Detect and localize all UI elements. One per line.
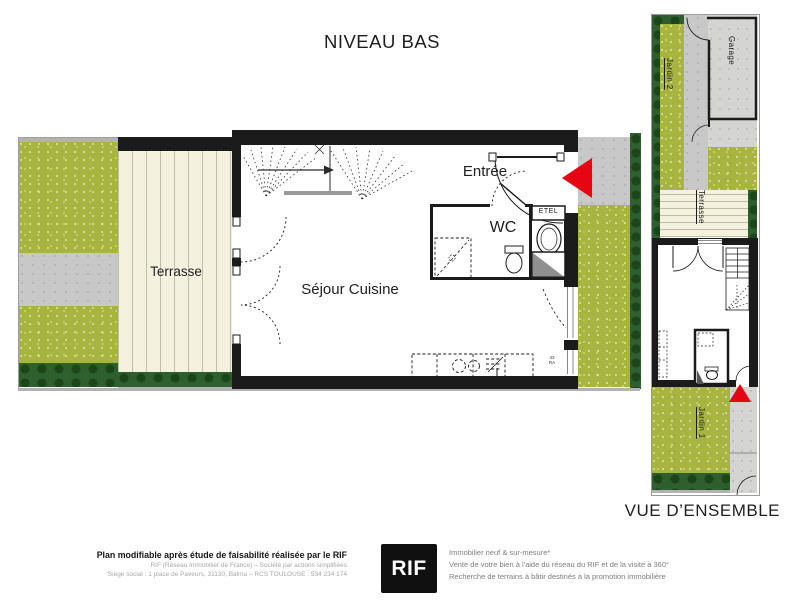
living-kitchen-label: Séjour Cuisine [290,281,410,298]
footer-disclaimer: Plan modifiable après étude de faisabili… [58,550,347,560]
page-title: NIVEAU BAS [282,31,482,53]
garden-grass-lower [19,306,119,363]
left-garden-strip [18,137,122,390]
terrace-decking [118,151,232,372]
window-opening-upper [564,287,578,338]
floor-plan-page: NIVEAU BAS Terrasse Séjour Cuisine Entré… [0,0,800,600]
right-garden-grass [578,205,630,387]
house-wall-bottom [232,376,578,389]
entry-label: Entrée [435,163,535,180]
rif-logo: RIF [381,544,437,593]
kitchen-note: 43 RA [546,355,558,365]
terrace-hedge [118,372,232,387]
footer-legal-1: RIF (Réseau Immobilier de France) – Soci… [58,562,347,571]
footer-legal-2: Siège social : 1 place de Paveurs, 31130… [58,571,347,580]
house-wall-left-2 [232,258,241,266]
right-hedge-strip [630,133,641,389]
house-wall-top [232,130,578,145]
wc-wall-left [430,204,433,280]
footer-service-1: Immobilier neuf & sur-mesure* [449,547,739,559]
window-opening-lower [564,350,578,376]
wc-wall-divider [529,207,532,277]
ov-garage-label: Garage [727,36,736,102]
house-wall-right-2 [564,213,578,287]
house-wall-right-3 [564,340,578,350]
garden-pathway [19,253,119,306]
entry-pathway [578,137,630,205]
garden-hedge [19,363,119,387]
wc-label: WC [478,219,528,237]
house-wall-right-1 [564,130,578,152]
footer-service-3: Recherche de terrains à bâtir destinés à… [449,571,739,583]
ov-garden1-label: Jardin 1 [697,407,706,459]
etel-label: ETEL [532,208,565,215]
footer-service-2: Vente de votre bien à l'aide du réseau d… [449,559,739,571]
wc-wall-top [430,204,490,207]
house-wall-left-1 [232,130,241,217]
ov-terrace-label: Terrasse [697,190,706,238]
overview-title: VUE D’ENSEMBLE [595,501,780,521]
wc-wall-bottom [430,277,565,280]
footer-disclaimer-block: Plan modifiable après étude de faisabili… [58,550,347,579]
garden-grass-upper [19,142,119,253]
entrance-opening [564,152,578,213]
footer-services-block: Immobilier neuf & sur-mesure* Vente de v… [449,547,739,583]
terrace-label: Terrasse [120,264,232,279]
ov-garden2-label: Jardin 2 [665,58,674,148]
house-wall-left-3 [232,344,241,376]
rif-logo-text: RIF [391,557,426,581]
terrace-top-wall [118,137,232,151]
